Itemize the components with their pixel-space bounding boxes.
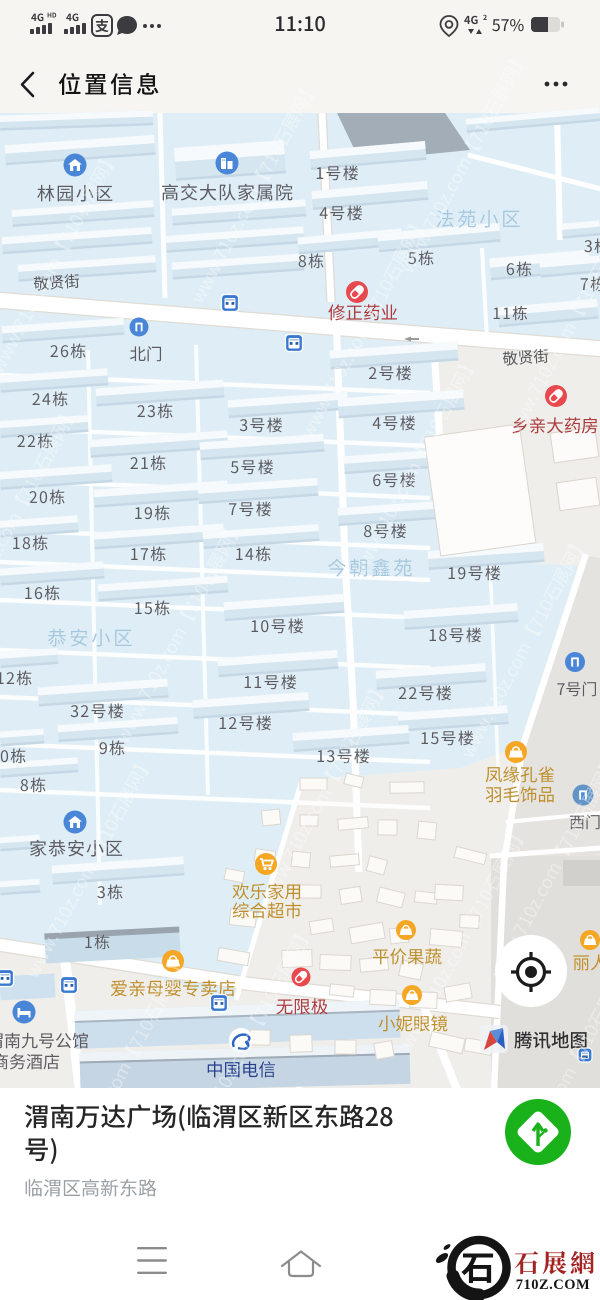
svg-text:710Z.COM: 710Z.COM bbox=[516, 1277, 590, 1293]
